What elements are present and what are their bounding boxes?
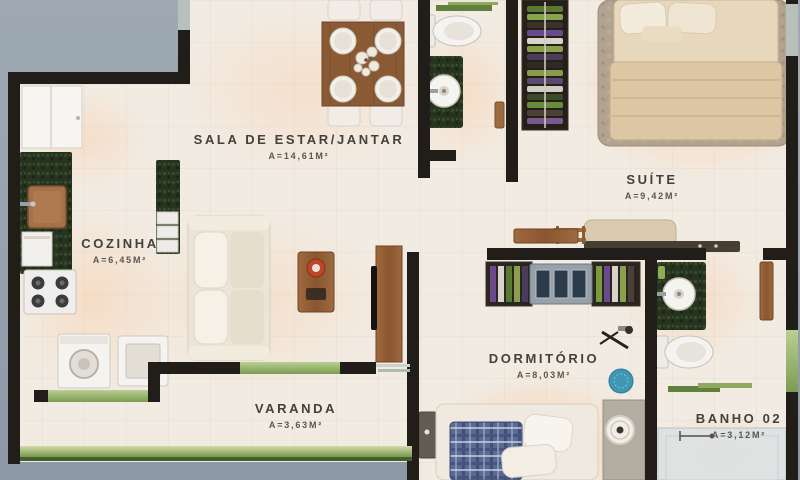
window-glass <box>786 4 798 56</box>
dining-table-icon <box>322 22 404 106</box>
suite-door-leaf-icon <box>514 229 578 243</box>
door-leaf-icon <box>760 262 773 320</box>
tv-panel-icon <box>371 246 402 362</box>
washer-icon <box>58 334 110 388</box>
stove-icon <box>24 270 76 314</box>
door-leaf-icon <box>495 102 504 128</box>
vessel-sink-icon <box>428 75 460 107</box>
window-glass <box>178 0 190 30</box>
toilet-icon <box>423 15 481 47</box>
refrigerator-icon <box>22 86 82 148</box>
window-glass <box>786 330 798 392</box>
wardrobe-icon <box>486 262 640 306</box>
laundry-tank-icon <box>118 336 168 386</box>
window-glass <box>240 362 340 374</box>
floor-plan-drawing <box>0 0 800 480</box>
chair-icon <box>328 0 360 20</box>
single-bed-icon <box>436 404 598 480</box>
toilet-icon <box>656 336 713 368</box>
shower-box-icon <box>658 428 786 480</box>
floor-plan: SALA DE ESTAR/JANTAR A=14,61M² COZINHA A… <box>0 0 800 480</box>
dishwasher-icon <box>22 232 52 266</box>
chair-icon <box>370 104 402 126</box>
window-glass <box>48 390 148 402</box>
wardrobe-icon <box>522 0 568 130</box>
desk-icon <box>603 400 645 480</box>
island-drawers-icon <box>156 160 180 254</box>
double-bed-icon <box>610 0 782 140</box>
pouf-icon <box>609 369 633 393</box>
coffee-table-icon <box>298 252 334 312</box>
sofa-icon <box>188 216 270 360</box>
chair-icon <box>328 104 360 126</box>
nightstand-icon <box>419 412 436 458</box>
chair-icon <box>370 0 402 20</box>
glass-railing-icon <box>20 446 412 461</box>
